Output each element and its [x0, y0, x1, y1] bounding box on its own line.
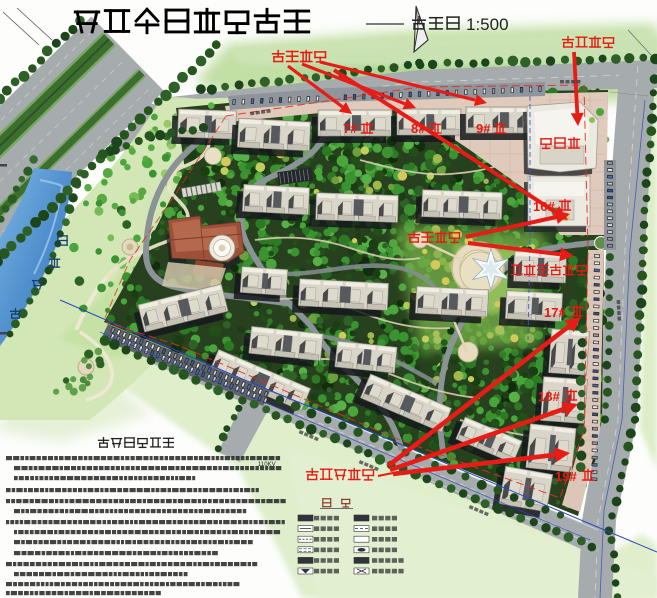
svg-text:110KV: 110KV [258, 462, 276, 468]
svg-text:16#: 16# [533, 199, 555, 214]
svg-text:7#: 7# [343, 121, 358, 136]
svg-text:19#: 19# [555, 469, 577, 484]
svg-text:1:500: 1:500 [466, 15, 509, 34]
svg-text:8#: 8# [411, 121, 426, 136]
svg-text:9#: 9# [476, 121, 491, 136]
svg-text:18#: 18# [538, 389, 560, 404]
svg-text:17#: 17# [544, 305, 566, 320]
